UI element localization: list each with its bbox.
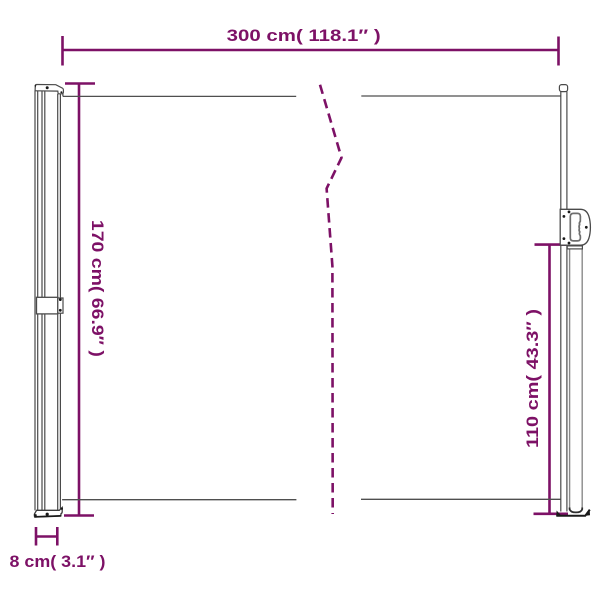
svg-text:300 cm( 118.1″ ): 300 cm( 118.1″ ) [227,26,381,45]
svg-text:170 cm( 66.9″ ): 170 cm( 66.9″ ) [88,220,107,357]
svg-text:110 cm( 43.3″ ): 110 cm( 43.3″ ) [523,309,542,448]
svg-text:8 cm( 3.1″ ): 8 cm( 3.1″ ) [10,552,106,571]
